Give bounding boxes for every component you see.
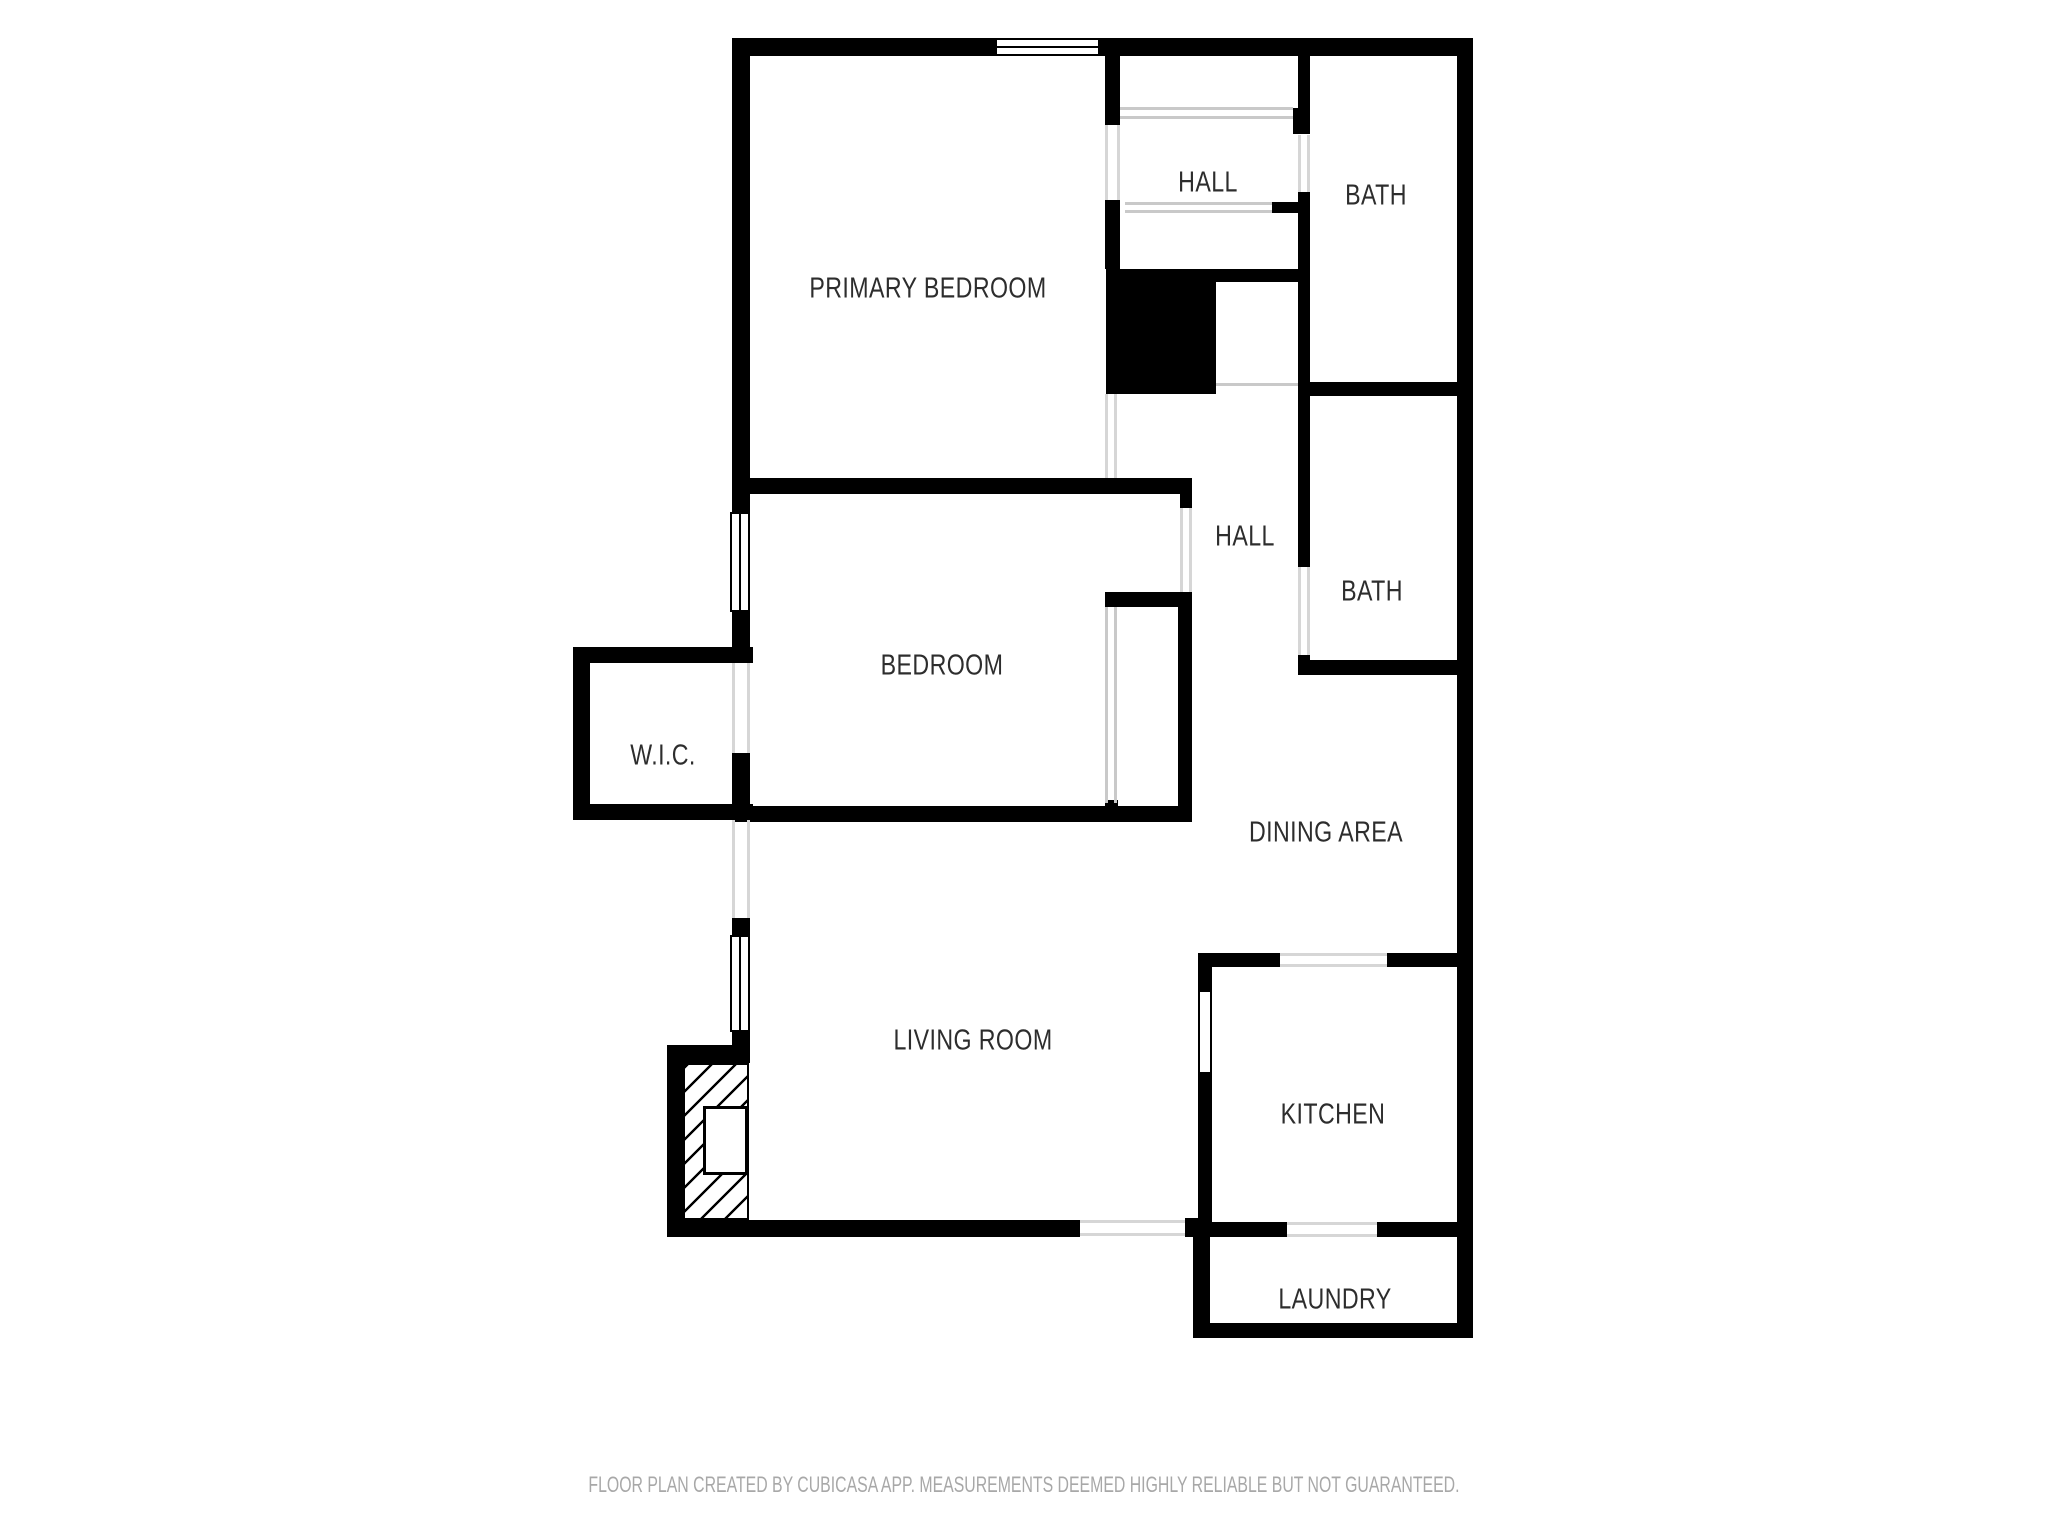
wall-segment: [573, 647, 590, 820]
closet-door-line: [1105, 607, 1108, 803]
wall-segment: [1105, 56, 1120, 125]
disclaimer-text: FLOOR PLAN CREATED BY CUBICASA APP. MEAS…: [0, 1472, 2048, 1498]
window-marker: [730, 935, 750, 1032]
door-opening: [1180, 508, 1183, 592]
door-opening: [1105, 394, 1108, 478]
floor-plan: PRIMARY BEDROOM HALL BATH HALL BATH BEDR…: [0, 0, 2048, 1536]
door-opening: [1307, 567, 1310, 655]
door-opening: [1114, 394, 1117, 478]
room-label-bath-lower: BATH: [1341, 576, 1403, 609]
wall-segment: [1377, 1222, 1457, 1237]
room-label-bath-upper: BATH: [1345, 180, 1407, 213]
wall-segment: [1198, 953, 1212, 992]
door-opening: [1189, 508, 1192, 592]
wall-segment: [732, 753, 750, 804]
door-opening: [1280, 953, 1387, 956]
closet-door-line: [1114, 607, 1117, 803]
door-opening: [747, 663, 750, 753]
wall-segment: [1298, 382, 1473, 396]
door-opening: [1117, 125, 1120, 200]
wall-segment: [1298, 660, 1457, 675]
room-label-hall-lower: HALL: [1215, 521, 1275, 554]
door-opening: [1298, 135, 1301, 192]
wall-segment: [1100, 38, 1473, 56]
wall-segment: [1180, 478, 1192, 508]
door-opening: [1307, 135, 1310, 192]
door-opening: [1280, 964, 1387, 967]
wall-segment: [1185, 1222, 1287, 1237]
door-opening: [732, 663, 735, 753]
wall-segment: [573, 804, 753, 820]
closet-door-line: [1120, 116, 1293, 119]
fireplace-box: [703, 1106, 748, 1175]
wall-segment: [573, 647, 753, 663]
door-opening: [1105, 125, 1108, 200]
closet-door-line: [1120, 107, 1293, 110]
room-label-kitchen: KITCHEN: [1281, 1099, 1386, 1132]
window-marker: [995, 38, 1100, 56]
room-label-primary-bedroom: PRIMARY BEDROOM: [809, 273, 1046, 306]
wall-segment: [1178, 592, 1192, 822]
wall-segment: [1298, 396, 1310, 567]
wall-segment: [1298, 192, 1310, 394]
door-opening: [1287, 1222, 1377, 1225]
disclaimer-label: FLOOR PLAN CREATED BY CUBICASA APP. MEAS…: [588, 1472, 1459, 1498]
window-marker: [730, 512, 750, 612]
wall-segment: [667, 1220, 1080, 1237]
room-label-hall-upper: HALL: [1178, 167, 1238, 200]
wall-segment: [1387, 953, 1457, 967]
wall-segment: [1193, 1323, 1473, 1338]
wall-segment: [667, 1045, 683, 1237]
wall-segment: [1293, 108, 1310, 134]
window-marker: [1198, 990, 1212, 1074]
wall-segment: [1457, 38, 1473, 1338]
wall-segment: [1198, 1072, 1212, 1222]
closet-door-line: [1216, 383, 1298, 386]
wall-segment: [1272, 202, 1298, 213]
wall-segment: [732, 38, 750, 515]
window-pane-line: [739, 937, 741, 1030]
door-opening: [732, 820, 735, 918]
wall-segment: [1216, 269, 1298, 282]
room-label-laundry: LAUNDRY: [1278, 1284, 1391, 1317]
wall-segment: [1105, 200, 1120, 269]
wall-segment: [732, 38, 995, 56]
wall-segment: [733, 806, 1192, 822]
room-label-wic: W.I.C.: [630, 740, 696, 773]
shaft-block: [1106, 269, 1216, 394]
closet-door-line: [1125, 210, 1272, 213]
door-opening: [1287, 1234, 1377, 1237]
window-pane-line: [739, 514, 741, 610]
wall-segment: [746, 478, 1192, 494]
door-opening: [1080, 1220, 1185, 1223]
room-label-dining-area: DINING AREA: [1249, 817, 1403, 850]
room-label-living-room: LIVING ROOM: [893, 1025, 1052, 1058]
closet-door-line: [1125, 202, 1272, 205]
door-opening: [1080, 1233, 1185, 1236]
room-label-bedroom: BEDROOM: [881, 650, 1004, 683]
door-opening: [1298, 567, 1301, 655]
window-pane-line: [997, 46, 1098, 48]
door-opening: [747, 820, 750, 918]
